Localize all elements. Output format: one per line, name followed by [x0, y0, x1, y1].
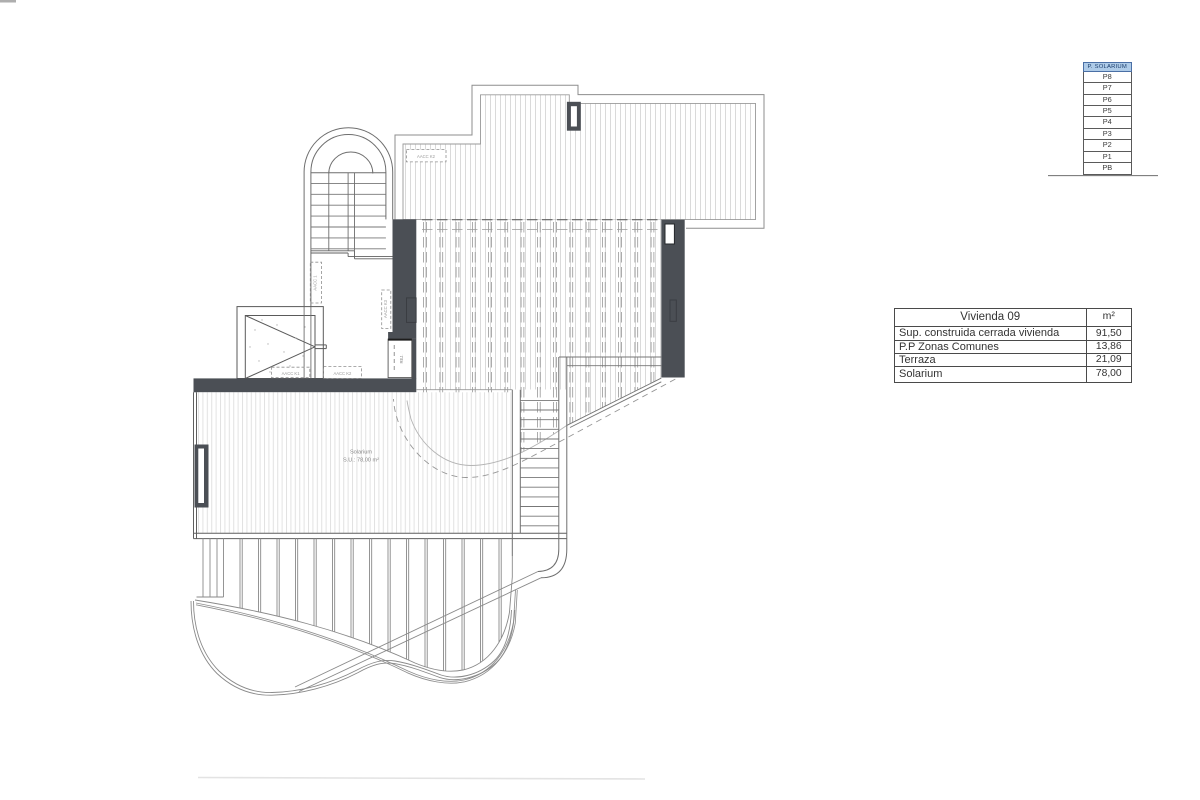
svg-text:AACC K2: AACC K2	[417, 154, 436, 159]
svg-text:Solarium: Solarium	[350, 450, 372, 456]
svg-text:S.U.: 78,00 m²: S.U.: 78,00 m²	[343, 458, 379, 464]
svg-text:REJ.: REJ.	[399, 354, 404, 363]
svg-text:AACC K3: AACC K3	[383, 299, 388, 318]
svg-text:AACC K2: AACC K2	[333, 371, 352, 376]
svg-text:AACC 1: AACC 1	[313, 275, 318, 291]
svg-text:AACC K1: AACC K1	[282, 371, 301, 376]
